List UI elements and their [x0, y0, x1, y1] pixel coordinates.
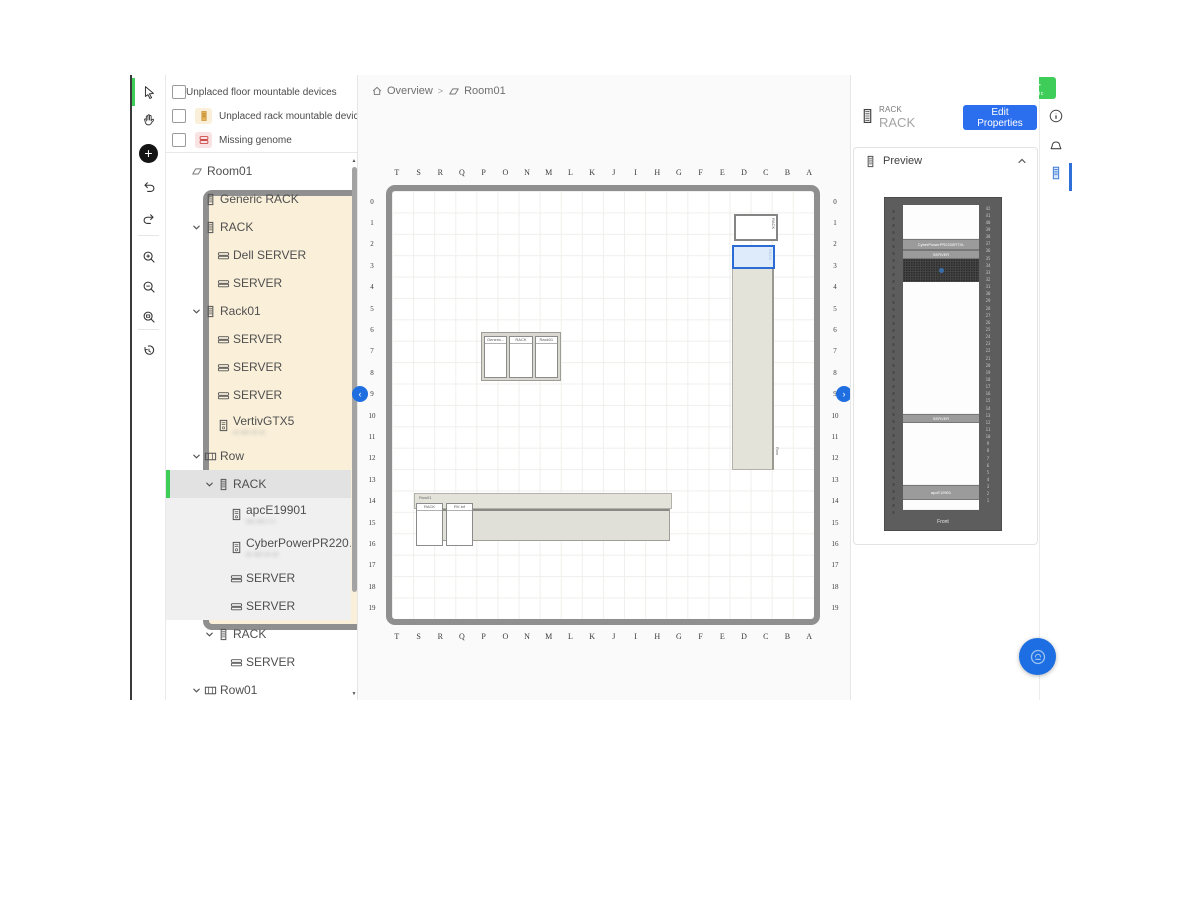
tree-item-dell-server[interactable]: Dell SERVER [166, 241, 351, 269]
tree-item-label: apcE19901 [246, 503, 307, 517]
empty-rack-space [903, 500, 979, 510]
edit-properties-button[interactable]: Edit Properties [963, 105, 1037, 130]
rack-icon [203, 192, 217, 206]
canvas-rack-group[interactable]: Generic...RACKRack01 [481, 332, 561, 381]
grid-column-label: C [755, 168, 777, 178]
tree-item-label: SERVER [233, 332, 282, 346]
grid-row-label: 7 [828, 341, 842, 362]
grid-column-label: H [646, 168, 668, 178]
grid-row-label: 1 [828, 212, 842, 233]
rack-panel-tab-button[interactable] [1047, 164, 1065, 182]
unit-number: 12 [982, 419, 994, 426]
grid-column-label: L [560, 632, 582, 642]
tree-item-label: SERVER [233, 388, 282, 402]
grid-row-label: 0 [828, 191, 842, 212]
inspector-type-caption: RACK [879, 105, 902, 114]
rack-icon [203, 220, 217, 234]
unit-number: 16 [982, 391, 994, 398]
grid-row-label: 13 [365, 469, 379, 490]
filter-label: Unplaced floor mountable devices [186, 87, 337, 98]
filters-divider [166, 152, 357, 153]
rack-icon [203, 304, 217, 318]
server-icon [216, 332, 230, 346]
grid-row-label: 10 [365, 405, 379, 426]
checkbox[interactable] [172, 85, 186, 99]
info-tab-button[interactable] [1047, 107, 1065, 125]
tree-item-label: SERVER [246, 571, 295, 585]
grid-column-labels-top: TSRQPONMLKJIHGFEDCBA [386, 168, 820, 178]
tree-item-server[interactable]: SERVER [166, 269, 351, 297]
grid-row-label: 6 [365, 319, 379, 340]
grid-column-label: S [408, 168, 430, 178]
tree-item-row01[interactable]: Row01 [166, 676, 351, 700]
rack-preview-image: CyberPowerPR2200RTXLSERVERSERVERapcE1990… [884, 197, 1002, 531]
grid-row-label: 15 [365, 512, 379, 533]
app-window: + Unplaced floor mountable devicesUnplac… [130, 75, 1072, 700]
grid-row-label: 12 [365, 448, 379, 469]
mini-rack-label: Generic... [485, 337, 506, 344]
tree-item-subtext-redacted: •• ••• •• •• [246, 551, 351, 559]
floorplan-canvas[interactable]: Overview > Room01 TSRQPONMLKJIHGFEDCBA T… [357, 75, 850, 700]
grid-row-label: 3 [365, 255, 379, 276]
tree-item-label: Room01 [207, 164, 252, 178]
grid-column-label: N [516, 168, 538, 178]
rack-devices: CyberPowerPR2200RTXLSERVERSERVERapcE1990… [903, 205, 979, 505]
inspector-panel: RACK RACK Edit Properties Preview CyberP… [850, 75, 1039, 700]
canvas-rack[interactable]: RACK [734, 214, 778, 241]
canvas-rack-label: RACK [768, 249, 772, 260]
unit-number: 42 [982, 205, 994, 212]
canvas-mini-rack[interactable]: RACK [416, 503, 443, 546]
chevron-placeholder [216, 541, 229, 554]
grid-row-label: 6 [828, 319, 842, 340]
grid-row-labels-left: 012345678910111213141516171819 [365, 191, 379, 619]
unit-number: 27 [982, 312, 994, 319]
tree-item-apce19901[interactable]: apcE19901••• ••• • • [166, 498, 351, 531]
grid-column-label: S [408, 632, 430, 642]
grid-row-label: 18 [828, 576, 842, 597]
grid-row-label: 2 [828, 234, 842, 255]
chevron-placeholder [216, 508, 229, 521]
grid-row-label: 13 [828, 469, 842, 490]
unit-number: 31 [982, 284, 994, 291]
history-tool[interactable] [132, 337, 165, 365]
tree-item-server[interactable]: SERVER [166, 353, 351, 381]
grid-column-label: C [755, 632, 777, 642]
ups-icon [229, 508, 243, 522]
unit-number: 30 [982, 291, 994, 298]
tree-item-rack[interactable]: RACK [166, 620, 351, 648]
filter-label: Missing genome [219, 135, 292, 146]
tree-item-label: Dell SERVER [233, 248, 306, 262]
grid-column-label: J [603, 168, 625, 178]
grid-column-label: P [473, 168, 495, 178]
server-icon [216, 276, 230, 290]
tree-item-room01[interactable]: Room01 [166, 157, 351, 185]
grid-row-label: 8 [828, 362, 842, 383]
grid-column-label: D [733, 632, 755, 642]
server-icon [216, 360, 230, 374]
room-icon [448, 85, 460, 97]
grid-column-label: A [798, 632, 820, 642]
server-icon [216, 388, 230, 402]
inspector-title: RACK [879, 115, 915, 130]
grid-column-label: J [603, 632, 625, 642]
grid-column-label: R [429, 168, 451, 178]
unit-number: 29 [982, 298, 994, 305]
rack-chip-icon [195, 108, 212, 124]
chevron-placeholder [203, 419, 216, 432]
grid-column-label: O [495, 168, 517, 178]
grid-column-label: B [777, 168, 799, 178]
grid-column-label: E [712, 168, 734, 178]
unit-number: 8 [982, 448, 994, 455]
grid-column-label: O [495, 632, 517, 642]
chevron-placeholder [190, 193, 203, 206]
unit-number: 7 [982, 455, 994, 462]
zoom-fit-icon [141, 309, 157, 325]
server-vent-panel [903, 259, 979, 282]
tree-item-label: VertivGTX5 [233, 414, 294, 428]
unit-number: 22 [982, 348, 994, 355]
chevron-placeholder [216, 600, 229, 613]
unit-number: 25 [982, 326, 994, 333]
tree-item-cyberpowerpr2200r[interactable]: CyberPowerPR2200R...•• ••• •• •• [166, 531, 351, 564]
room-icon [190, 164, 204, 178]
rack-icon [860, 106, 875, 126]
grid-column-label: G [668, 168, 690, 178]
empty-rack-space [903, 282, 979, 414]
grid-column-label: Q [451, 168, 473, 178]
tree-item-label: SERVER [233, 276, 282, 290]
canvas-mini-rack[interactable]: Generic... [484, 336, 507, 378]
pan-icon [141, 112, 157, 128]
preview-title: Preview [883, 155, 922, 167]
preview-card: Preview CyberPowerPR2200RTXLSERVERSERVER… [853, 147, 1038, 545]
grid-row-label: 2 [365, 234, 379, 255]
grid-column-label: F [690, 168, 712, 178]
row-icon [203, 683, 217, 697]
grid-column-label: D [733, 168, 755, 178]
mini-rack-label: RACK [417, 504, 442, 511]
tree-item-server[interactable]: SERVER [166, 381, 351, 409]
unit-number: 37 [982, 241, 994, 248]
zoom-in-tool[interactable] [132, 243, 165, 271]
canvas-row-vertical[interactable] [732, 269, 774, 470]
unit-number: 32 [982, 276, 994, 283]
filter-list: Unplaced floor mountable devicesUnplaced… [166, 80, 357, 152]
undo-icon [141, 179, 157, 195]
grid-row-label: 17 [828, 555, 842, 576]
grid-column-labels-bottom: TSRQPONMLKJIHGFEDCBA [386, 632, 820, 642]
grid-column-label: F [690, 632, 712, 642]
chevron-placeholder [216, 656, 229, 669]
grid-column-label: H [646, 632, 668, 642]
grid-column-label: A [798, 168, 820, 178]
tree-item-rack01[interactable]: Rack01 [166, 297, 351, 325]
zoom-out-icon [141, 279, 157, 295]
grid-row-labels-right: 012345678910111213141516171819 [828, 191, 842, 619]
device-tree: Room01Generic RACKRACKDell SERVERSERVERR… [166, 157, 351, 700]
grid-column-label: M [538, 168, 560, 178]
unit-number: 24 [982, 334, 994, 341]
grid-column-label: B [777, 632, 799, 642]
tree-item-vertivgtx5[interactable]: VertivGTX5•• ••• •• •• [166, 409, 351, 442]
tree-item-server[interactable]: SERVER [166, 592, 351, 620]
grid-column-label: N [516, 632, 538, 642]
breadcrumb-overview[interactable]: Overview [387, 85, 433, 97]
grid-column-label: P [473, 632, 495, 642]
unit-number: 4 [982, 476, 994, 483]
canvas-rack-label: RACK [771, 218, 775, 229]
grid-row-label: 8 [365, 362, 379, 383]
rack-icon [864, 155, 877, 168]
grid-row-label: 4 [365, 277, 379, 298]
rack-device: apcE19901 [903, 485, 979, 500]
grid-column-label: M [538, 632, 560, 642]
grid-row-label: 14 [365, 491, 379, 512]
tree-item-label: Generic RACK [220, 192, 299, 206]
unit-number: 15 [982, 398, 994, 405]
chevron-placeholder [203, 333, 216, 346]
tree-item-label: RACK [220, 220, 253, 234]
grid-column-label: I [625, 632, 647, 642]
grid-column-label: T [386, 168, 408, 178]
tree-item-label: Rack01 [220, 304, 261, 318]
tree-item-subtext-redacted: •• ••• •• •• [233, 429, 294, 437]
grid-column-label: K [581, 632, 603, 642]
unit-number: 38 [982, 234, 994, 241]
grid-row-label: 19 [828, 598, 842, 619]
zoom-in-icon [141, 249, 157, 265]
empty-rack-space [903, 205, 979, 239]
unit-number: 23 [982, 341, 994, 348]
tree-item-generic-rack[interactable]: Generic RACK [166, 185, 351, 213]
tree-item-label: RACK [233, 627, 266, 641]
canvas-mini-rack[interactable]: RV-Inf [446, 503, 473, 546]
grid-column-label: Q [451, 632, 473, 642]
undo-tool[interactable] [132, 173, 165, 201]
canvas-row-label: Row01 [419, 496, 671, 500]
unit-number: 5 [982, 469, 994, 476]
mini-rack-label: RACK [510, 337, 531, 344]
select-icon [141, 84, 157, 100]
breadcrumb: Overview > Room01 [371, 85, 506, 97]
unit-number: 21 [982, 355, 994, 362]
preview-header[interactable]: Preview [854, 148, 1037, 174]
grid-row-label: 11 [828, 426, 842, 447]
server-icon [229, 655, 243, 669]
grid-row-label: 1 [365, 212, 379, 233]
right-tab-strip [1039, 101, 1072, 700]
unit-number: 3 [982, 484, 994, 491]
grid-row-label: 14 [828, 491, 842, 512]
empty-rack-space [903, 423, 979, 485]
active-tab-indicator [1069, 163, 1072, 191]
grid-row-label: 5 [828, 298, 842, 319]
grid-row-label: 12 [828, 448, 842, 469]
chevron-up-icon[interactable] [1017, 156, 1027, 166]
unit-number: 18 [982, 376, 994, 383]
unit-number: 2 [982, 491, 994, 498]
filter-missing-genome[interactable]: Missing genome [166, 128, 357, 152]
tree-item-row[interactable]: Row [166, 442, 351, 470]
chevron-placeholder [177, 165, 190, 178]
chevron-down-icon[interactable] [203, 478, 216, 491]
filter-label: Unplaced rack mountable devices [219, 111, 369, 122]
drawing-toolbar: + [132, 75, 166, 700]
mini-rack-label: RV-Inf [447, 504, 472, 511]
tree-item-label: CyberPowerPR2200R... [246, 536, 351, 550]
tree-item-server[interactable]: SERVER [166, 325, 351, 353]
unit-number: 35 [982, 255, 994, 262]
tree-item-server[interactable]: SERVER [166, 564, 351, 592]
grid-row-label: 0 [365, 191, 379, 212]
assistant-icon [1028, 647, 1048, 667]
chevron-placeholder [203, 361, 216, 374]
checkbox[interactable] [172, 133, 186, 147]
unit-number: 13 [982, 412, 994, 419]
server-icon [229, 571, 243, 585]
grid-row-label: 18 [365, 576, 379, 597]
tree-item-label: SERVER [246, 599, 295, 613]
grid-row-label: 3 [828, 255, 842, 276]
tree-item-label: Row01 [220, 683, 257, 697]
assistant-fab[interactable] [1019, 638, 1056, 675]
unit-number: 26 [982, 319, 994, 326]
chevron-down-icon[interactable] [190, 684, 203, 697]
tree-item-rack[interactable]: RACK [166, 470, 351, 498]
ups-icon [216, 419, 230, 433]
unit-number: 17 [982, 384, 994, 391]
tree-item-label: SERVER [233, 360, 282, 374]
breadcrumb-room01[interactable]: Room01 [464, 85, 506, 97]
ups-icon [229, 541, 243, 555]
toolbar-divider [138, 235, 159, 236]
unit-number: 1 [982, 498, 994, 505]
zoom-out-tool[interactable] [132, 273, 165, 301]
grid-column-label: E [712, 632, 734, 642]
unit-number: 10 [982, 434, 994, 441]
rack-front-label: Front [885, 519, 1001, 525]
unit-number: 9 [982, 441, 994, 448]
tree-item-server[interactable]: SERVER [166, 648, 351, 676]
grid-column-label: L [560, 168, 582, 178]
grid-row-label: 7 [365, 341, 379, 362]
redo-tool[interactable] [132, 205, 165, 233]
grid-row-label: 15 [828, 512, 842, 533]
canvas-rack-selected[interactable]: RACK [732, 245, 775, 269]
canvas-row-label: Row [775, 447, 779, 455]
canvas-row-racks: RACKRV-Inf [416, 503, 473, 546]
unit-number: 41 [982, 212, 994, 219]
chevron-down-icon[interactable] [190, 305, 203, 318]
unit-number: 39 [982, 226, 994, 233]
home-icon [371, 85, 383, 97]
canvas-mini-rack[interactable]: RACK [509, 336, 532, 378]
collapse-sidebar-button[interactable]: ‹ [352, 386, 368, 402]
mini-rack-label: Rack01 [536, 337, 557, 344]
grid-row-label: 5 [365, 298, 379, 319]
grid-column-label: K [581, 168, 603, 178]
row-icon [203, 449, 217, 463]
add-tool[interactable]: + [132, 139, 165, 167]
grid-row-label: 19 [365, 598, 379, 619]
chevron-placeholder [203, 277, 216, 290]
chevron-down-icon[interactable] [190, 221, 203, 234]
rack-device: SERVER [903, 414, 979, 423]
grid-column-label: T [386, 632, 408, 642]
unit-number: 6 [982, 462, 994, 469]
unit-number: 33 [982, 269, 994, 276]
chevron-down-icon[interactable] [203, 628, 216, 641]
pan-tool[interactable] [132, 106, 165, 134]
grid-row-label: 4 [828, 277, 842, 298]
server-icon [216, 248, 230, 262]
server-icon [229, 599, 243, 613]
genome-chip-icon [195, 132, 212, 148]
unit-number: 11 [982, 426, 994, 433]
tree-item-label: RACK [233, 477, 266, 491]
filter-unplaced-floor-devices[interactable]: Unplaced floor mountable devices [166, 80, 357, 104]
unit-number: 40 [982, 219, 994, 226]
rack-unit-numbers: 4241403938373635343332313029282726252423… [982, 205, 994, 505]
rack-icon [216, 477, 230, 491]
rack-device: CyberPowerPR2200RTXL [903, 239, 979, 250]
grid-row-label: 16 [828, 533, 842, 554]
grid-row-label: 17 [365, 555, 379, 576]
unit-number: 34 [982, 262, 994, 269]
unit-number: 20 [982, 362, 994, 369]
alarm-tab-button[interactable] [1047, 137, 1065, 155]
chevron-placeholder [203, 389, 216, 402]
filter-unplaced-rack-devices[interactable]: Unplaced rack mountable devices [166, 104, 357, 128]
grid-column-label: I [625, 168, 647, 178]
grid-row-label: 10 [828, 405, 842, 426]
grid-column-label: R [429, 632, 451, 642]
tree-item-subtext-redacted: ••• ••• • • [246, 518, 307, 526]
sidebar: Unplaced floor mountable devicesUnplaced… [166, 75, 357, 700]
rack-icon [216, 627, 230, 641]
history-icon [141, 343, 157, 359]
canvas-mini-rack[interactable]: Rack01 [535, 336, 558, 378]
unit-number: 36 [982, 248, 994, 255]
unit-number: 28 [982, 305, 994, 312]
breadcrumb-separator: > [437, 86, 444, 96]
rack-device: SERVER [903, 250, 979, 259]
grid-column-label: G [668, 632, 690, 642]
grid-row-label: 11 [365, 426, 379, 447]
tree-item-rack[interactable]: RACK [166, 213, 351, 241]
chevron-placeholder [203, 249, 216, 262]
chevron-down-icon[interactable] [190, 450, 203, 463]
unit-number: 19 [982, 369, 994, 376]
grid-row-label: 16 [365, 533, 379, 554]
select-tool[interactable] [132, 78, 165, 106]
add-icon: + [139, 144, 158, 163]
redo-icon [141, 211, 157, 227]
zoom-fit-tool[interactable] [132, 303, 165, 331]
chevron-placeholder [216, 572, 229, 585]
unit-number: 14 [982, 405, 994, 412]
tree-item-label: SERVER [246, 655, 295, 669]
checkbox[interactable] [172, 109, 186, 123]
tree-item-label: Row [220, 449, 244, 463]
